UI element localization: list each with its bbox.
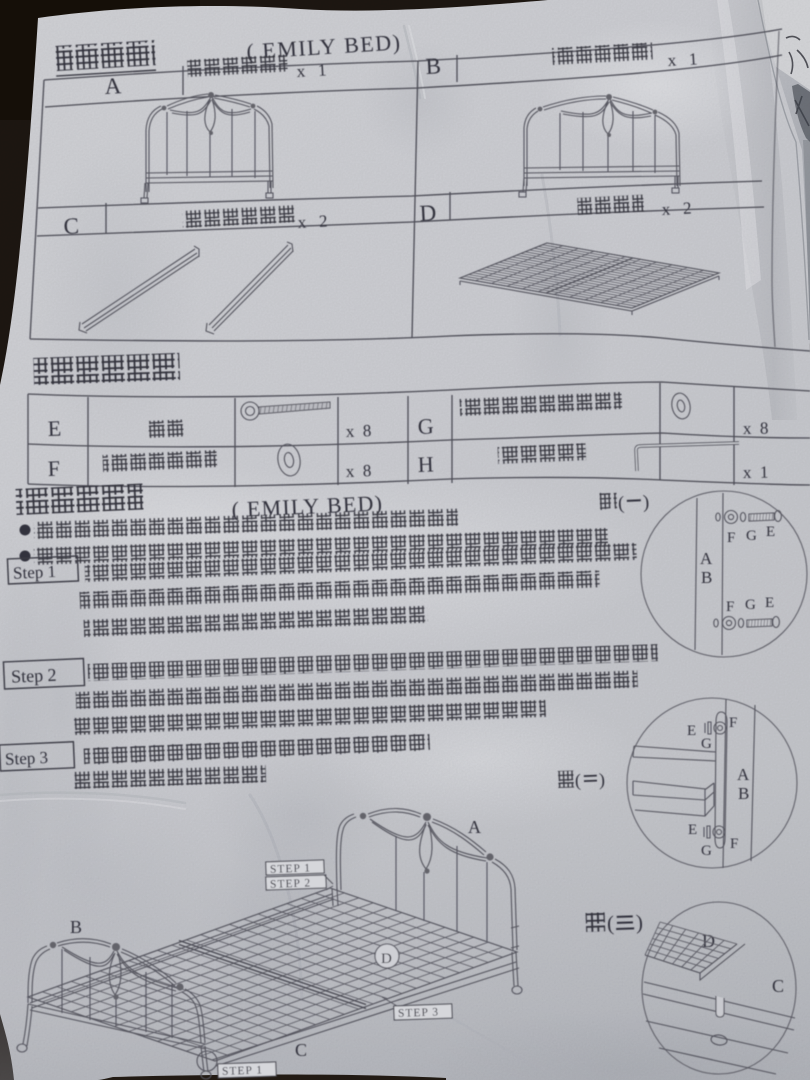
svg-text:F: F xyxy=(730,836,738,852)
svg-text:x 1: x 1 xyxy=(667,49,698,70)
svg-text:C: C xyxy=(63,213,80,239)
svg-text:F: F xyxy=(726,599,734,615)
svg-text:E: E xyxy=(765,595,774,611)
svg-text:A: A xyxy=(737,765,750,784)
svg-text:x 2: x 2 xyxy=(297,211,328,232)
svg-text:STEP 1: STEP 1 xyxy=(270,862,311,875)
svg-text:B: B xyxy=(425,53,442,79)
svg-text:(: ( xyxy=(618,493,625,514)
svg-text:x 1: x 1 xyxy=(743,463,769,482)
svg-text:B: B xyxy=(701,568,712,587)
svg-text:x 2: x 2 xyxy=(661,198,692,219)
svg-text:G: G xyxy=(745,597,756,613)
svg-text:STEP 1: STEP 1 xyxy=(222,1064,263,1077)
svg-text:(: ( xyxy=(575,770,582,791)
svg-text:G: G xyxy=(701,843,712,859)
svg-text:G: G xyxy=(701,736,712,752)
svg-text:B: B xyxy=(738,784,749,803)
svg-text:A: A xyxy=(104,73,122,99)
svg-text:Step 1: Step 1 xyxy=(13,562,57,583)
svg-text:E: E xyxy=(766,524,775,540)
svg-text:x 8: x 8 xyxy=(345,461,371,481)
svg-text:D: D xyxy=(381,951,392,967)
svg-text:C: C xyxy=(772,976,784,996)
svg-text:x 8: x 8 xyxy=(743,419,769,438)
svg-text:B: B xyxy=(70,917,82,937)
svg-text:x 8: x 8 xyxy=(345,421,371,441)
svg-text:): ) xyxy=(642,492,649,513)
svg-text:C: C xyxy=(295,1040,307,1060)
svg-text:F: F xyxy=(727,530,735,546)
svg-text:H: H xyxy=(417,451,434,477)
svg-text:G: G xyxy=(746,528,757,544)
svg-text:G: G xyxy=(417,413,434,439)
svg-text:E: E xyxy=(47,416,61,441)
svg-text:x 1: x 1 xyxy=(296,60,327,81)
svg-text:A: A xyxy=(700,549,713,568)
svg-text:): ) xyxy=(636,910,644,934)
svg-text:E: E xyxy=(687,723,696,739)
svg-text:F: F xyxy=(729,715,737,731)
svg-text:(: ( xyxy=(607,911,615,935)
svg-text:F: F xyxy=(47,456,60,481)
svg-text:D: D xyxy=(419,200,437,226)
svg-text:Step 2: Step 2 xyxy=(11,665,57,687)
svg-text:Step 3: Step 3 xyxy=(5,748,49,769)
svg-text:A: A xyxy=(468,817,481,837)
svg-text:STEP 3: STEP 3 xyxy=(398,1006,439,1019)
svg-text:E: E xyxy=(688,822,697,838)
svg-text:STEP 2: STEP 2 xyxy=(270,877,311,890)
svg-text:): ) xyxy=(599,769,606,790)
